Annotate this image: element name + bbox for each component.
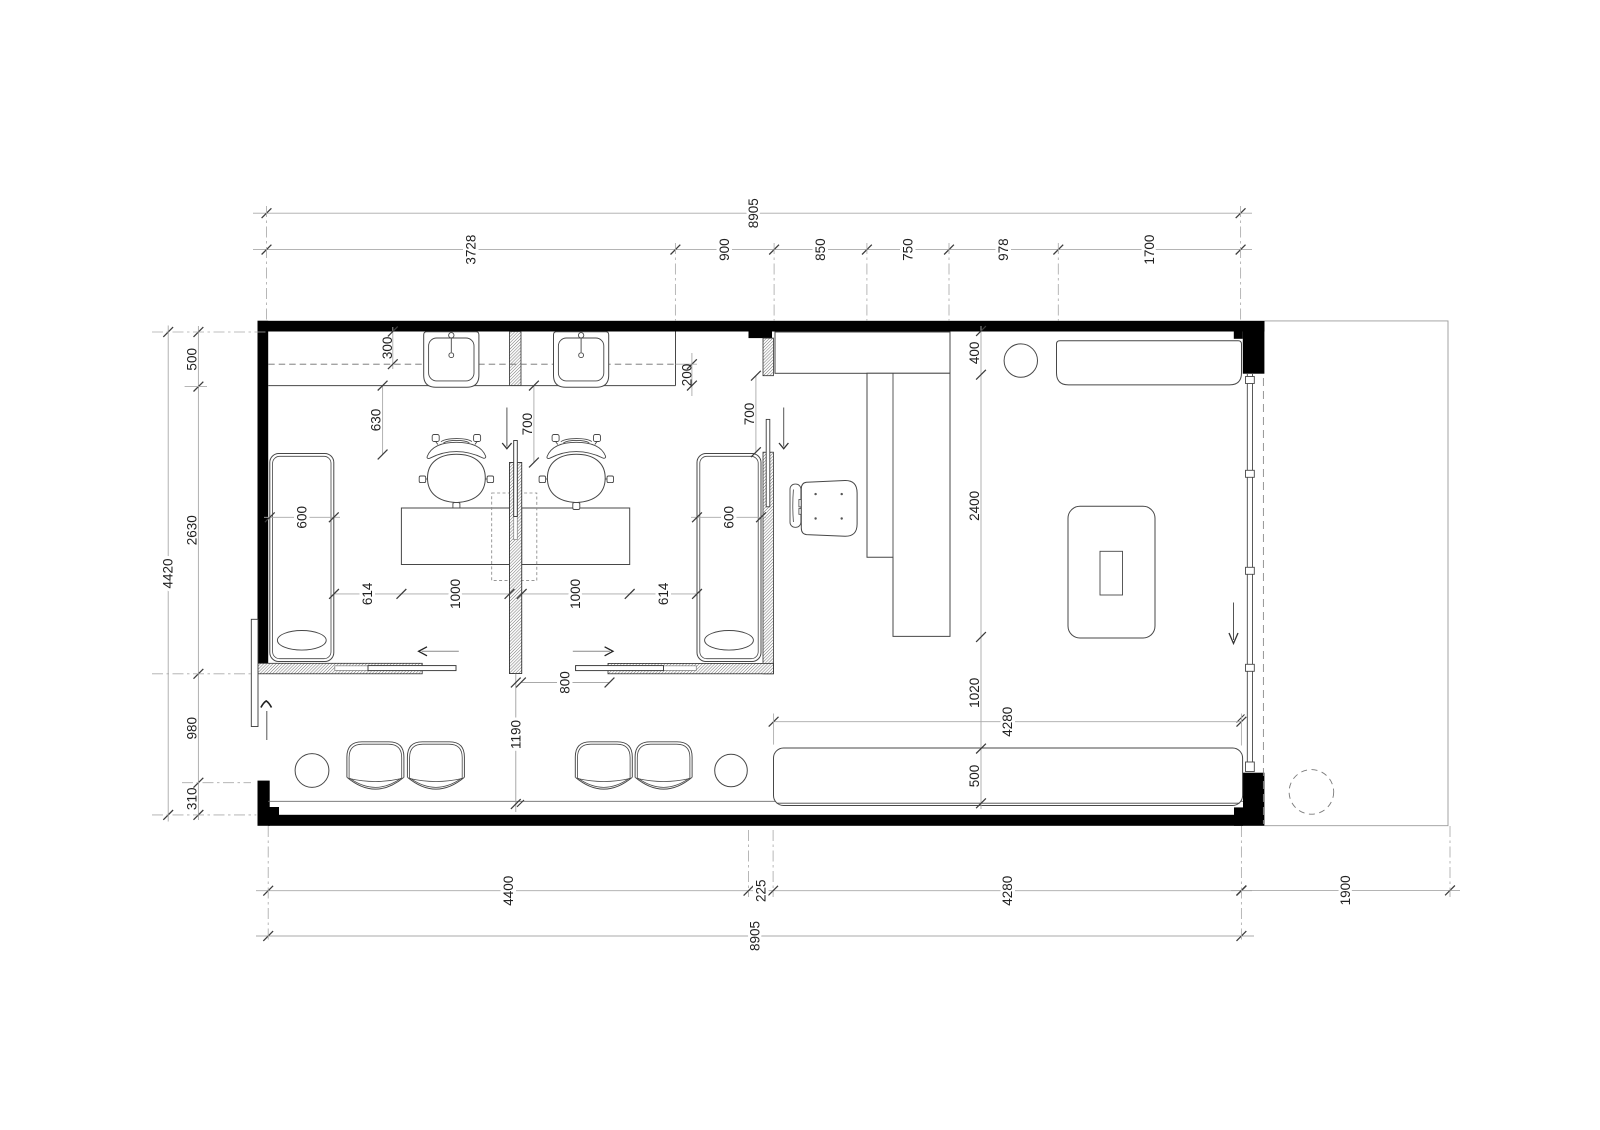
svg-text:500: 500	[967, 765, 982, 788]
svg-text:1700: 1700	[1142, 235, 1157, 265]
svg-text:2630: 2630	[185, 515, 200, 545]
svg-text:4280: 4280	[1000, 707, 1015, 737]
svg-text:1190: 1190	[508, 720, 523, 749]
svg-text:8905: 8905	[747, 921, 762, 951]
svg-text:700: 700	[742, 403, 757, 426]
svg-text:630: 630	[369, 409, 384, 432]
svg-text:600: 600	[294, 506, 309, 529]
svg-text:614: 614	[656, 582, 671, 605]
svg-text:980: 980	[185, 717, 200, 740]
svg-text:850: 850	[813, 238, 828, 261]
svg-text:225: 225	[753, 879, 768, 902]
svg-text:4400: 4400	[501, 876, 516, 906]
svg-text:1900: 1900	[1338, 875, 1353, 905]
svg-text:800: 800	[558, 671, 573, 694]
svg-text:978: 978	[996, 238, 1011, 261]
svg-text:1000: 1000	[448, 579, 463, 609]
svg-text:4280: 4280	[1000, 876, 1015, 906]
svg-text:310: 310	[185, 788, 200, 811]
svg-text:1020: 1020	[967, 678, 982, 708]
svg-text:2400: 2400	[967, 491, 982, 521]
svg-text:4420: 4420	[161, 558, 176, 588]
svg-text:750: 750	[901, 238, 916, 261]
svg-text:900: 900	[717, 238, 732, 261]
svg-text:700: 700	[520, 413, 535, 436]
svg-text:614: 614	[360, 582, 375, 605]
svg-text:300: 300	[380, 337, 395, 360]
svg-text:600: 600	[722, 506, 737, 529]
svg-text:200: 200	[680, 364, 695, 387]
svg-text:500: 500	[185, 348, 200, 371]
svg-text:1000: 1000	[568, 579, 583, 609]
svg-text:8905: 8905	[746, 198, 761, 228]
svg-text:400: 400	[967, 342, 982, 365]
svg-text:3728: 3728	[464, 235, 479, 265]
